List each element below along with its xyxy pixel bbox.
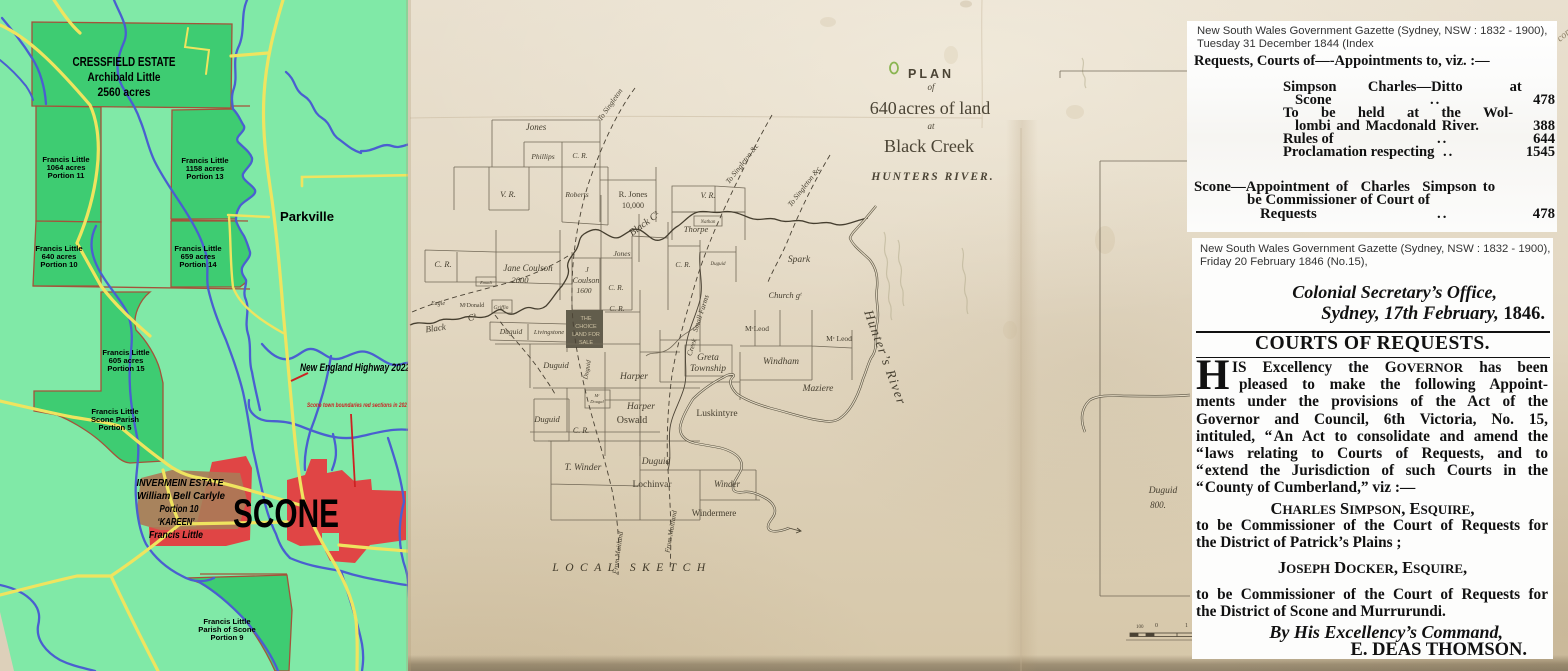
svg-text:of: of	[927, 82, 936, 92]
svg-text:C. R.: C. R.	[609, 304, 624, 313]
svg-text:SCONE: SCONE	[233, 492, 339, 536]
svg-text:Portion 10: Portion 10	[40, 260, 77, 269]
svg-text:Archibald Little: Archibald Little	[88, 70, 161, 84]
svg-text:INVERMEIN ESTATE: INVERMEIN ESTATE	[137, 477, 225, 489]
svg-text:Windham: Windham	[763, 357, 799, 367]
svg-text:William Bell Carlyle: William Bell Carlyle	[137, 490, 225, 502]
svg-text:Jones: Jones	[526, 122, 547, 132]
svg-text:Thorpe: Thorpe	[684, 224, 709, 234]
svg-text:Mᶜ Leod: Mᶜ Leod	[826, 334, 852, 343]
svg-text:To Singleton &c: To Singleton &c	[786, 164, 823, 208]
svg-text:Windermere: Windermere	[692, 508, 737, 518]
svg-text:Roberts: Roberts	[564, 190, 588, 199]
svg-text:‘KAREEN’: ‘KAREEN’	[158, 516, 196, 528]
svg-text:100: 100	[1136, 625, 1144, 630]
svg-text:Hunter’s River: Hunter’s River	[861, 307, 910, 407]
svg-text:Maziere: Maziere	[802, 384, 834, 394]
svg-text:V. R.: V. R.	[701, 191, 716, 200]
svg-text:Mᶜ: Mᶜ	[594, 393, 601, 398]
svg-text:Emadi: Emadi	[479, 280, 492, 285]
svg-text:10,000: 10,000	[622, 201, 644, 210]
svg-text:1: 1	[1185, 623, 1188, 629]
svg-text:Scone town boundaries red sect: Scone town boundaries red sections in 20…	[307, 403, 408, 409]
svg-text:Dougal: Dougal	[589, 399, 604, 404]
svg-text:Portion 10: Portion 10	[160, 503, 199, 515]
svg-text:Cᵏ: Cᵏ	[466, 311, 478, 323]
svg-text:Portion 5: Portion 5	[99, 423, 133, 432]
svg-text:THE: THE	[581, 316, 592, 322]
svg-text:Eagle: Eagle	[430, 301, 445, 307]
svg-text:Portion 13: Portion 13	[186, 172, 223, 181]
svg-text:Jane Coulson: Jane Coulson	[503, 263, 553, 273]
svg-text:MᶜDonald: MᶜDonald	[460, 303, 485, 309]
svg-text:C. R.: C. R.	[675, 260, 690, 269]
svg-text:Black Cᵏ: Black Cᵏ	[627, 209, 663, 239]
svg-text:V. R.: V. R.	[500, 189, 516, 199]
svg-text:Winder: Winder	[714, 479, 740, 489]
svg-text:MᶜLeod: MᶜLeod	[745, 324, 769, 333]
svg-text:Duguid: Duguid	[542, 360, 569, 370]
svg-text:Duguid: Duguid	[641, 457, 671, 467]
svg-text:Griffin: Griffin	[494, 304, 509, 311]
svg-text:Greta: Greta	[697, 353, 719, 363]
svg-text:Black: Black	[425, 322, 448, 335]
svg-text:2560 acres: 2560 acres	[98, 85, 151, 99]
svg-text:SALE: SALE	[579, 340, 593, 346]
svg-text:Township: Township	[690, 364, 726, 374]
svg-text:T. Winder: T. Winder	[565, 463, 602, 473]
svg-text:2000: 2000	[512, 275, 530, 285]
svg-text:C. R.: C. R.	[572, 151, 587, 160]
svg-text:Coulson: Coulson	[573, 276, 600, 285]
svg-text:Portion 11: Portion 11	[48, 171, 85, 180]
svg-text:Duguid: Duguid	[710, 262, 727, 267]
svg-text:Church gᵗ: Church gᵗ	[769, 290, 803, 300]
svg-text:Portion 9: Portion 9	[211, 633, 244, 642]
svg-text:Duguid: Duguid	[499, 327, 523, 336]
svg-text:Parkville: Parkville	[280, 209, 334, 224]
svg-text:Duguid: Duguid	[533, 414, 560, 424]
svg-text:C. R.: C. R.	[608, 283, 623, 292]
svg-text:CHOICE: CHOICE	[575, 324, 597, 330]
svg-text:Duguid: Duguid	[1148, 486, 1178, 496]
svg-text:Francis Little: Francis Little	[149, 529, 203, 541]
svg-text:0: 0	[1155, 623, 1158, 629]
svg-text:Luskintyre: Luskintyre	[696, 409, 737, 419]
svg-text:Black Creek: Black Creek	[884, 136, 974, 156]
svg-text:640 acres of land: 640 acres of land	[870, 98, 990, 118]
svg-text:From Maitland: From Maitland	[663, 509, 679, 554]
svg-text:Spark: Spark	[788, 255, 811, 265]
svg-text:Jones: Jones	[613, 249, 630, 258]
svg-text:PLAN: PLAN	[908, 67, 954, 81]
svg-text:Portion 15: Portion 15	[107, 364, 145, 373]
svg-text:HUNTERS RIVER.: HUNTERS RIVER.	[870, 171, 994, 183]
svg-text:Small Farms: Small Farms	[690, 293, 710, 333]
svg-text:To Singleton &c: To Singleton &c	[724, 141, 761, 185]
svg-text:at: at	[927, 121, 935, 131]
svg-text:J: J	[585, 266, 589, 274]
svg-text:Livingstone: Livingstone	[533, 329, 564, 336]
svg-text:Harper: Harper	[626, 402, 655, 412]
svg-text:Portion 14: Portion 14	[179, 260, 217, 269]
svg-text:C. R.: C. R.	[573, 426, 589, 435]
svg-text:C. R.: C. R.	[434, 259, 451, 269]
svg-text:Harper: Harper	[619, 372, 648, 382]
svg-text:LOCAL SKETCH: LOCAL SKETCH	[551, 562, 711, 574]
svg-text:CRESSFIELD ESTATE: CRESSFIELD ESTATE	[73, 54, 176, 69]
svg-text:LAND FOR: LAND FOR	[572, 332, 600, 338]
svg-text:Oswald: Oswald	[617, 415, 648, 426]
svg-text:800.: 800.	[1150, 500, 1166, 510]
svg-text:R. Jones: R. Jones	[619, 189, 648, 199]
svg-text:1600: 1600	[577, 286, 592, 295]
svg-text:Lochinvar: Lochinvar	[632, 480, 672, 490]
svg-text:New England Highway 2022: New England Highway 2022	[300, 362, 410, 374]
svg-text:Duguid: Duguid	[582, 359, 593, 381]
svg-text:Phillips: Phillips	[530, 152, 554, 161]
